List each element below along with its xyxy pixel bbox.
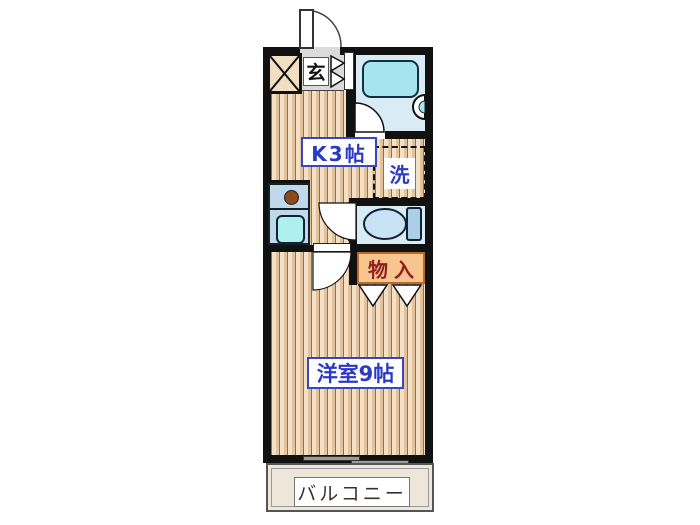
burner — [284, 190, 299, 205]
entrance-door-arc — [313, 11, 341, 47]
western-room-label-box: 洋室9帖 — [307, 357, 404, 389]
toilet-room-floor — [357, 204, 425, 244]
wall-right — [425, 47, 433, 463]
wall-left — [263, 47, 271, 463]
pipe-space — [267, 53, 302, 94]
floor-plan: 玄 洗 物入 K3帖 洋室9帖 バルコニー — [0, 0, 700, 525]
kitchen-sink — [276, 215, 305, 244]
wall-toilet-top — [349, 198, 433, 206]
balcony: バルコニー — [266, 463, 434, 512]
laundry-label: 洗 — [390, 159, 410, 188]
room-door-leaf — [313, 243, 351, 252]
genkan-label-box: 玄 — [303, 57, 329, 86]
bathtub — [362, 60, 419, 98]
balcony-label-box: バルコニー — [294, 477, 410, 507]
kitchen-label: K3帖 — [311, 138, 366, 167]
storage-label: 物入 — [368, 254, 420, 283]
counter-divider — [270, 208, 308, 210]
kitchen-label-box: K3帖 — [301, 137, 377, 167]
entrance-door-leaf — [300, 10, 313, 48]
toilet-door-leaf — [348, 202, 357, 241]
storage-closet: 物入 — [357, 252, 425, 284]
genkan-label: 玄 — [306, 58, 325, 85]
balcony-label: バルコニー — [297, 479, 407, 506]
laundry-space: 洗 — [373, 146, 426, 199]
wall-toilet-bottom — [349, 244, 433, 252]
wall-kitchen-room-left — [263, 245, 313, 252]
western-room-label: 洋室9帖 — [317, 358, 395, 388]
entrance-opening — [300, 47, 340, 55]
bath-entry-gap — [344, 52, 354, 90]
laundry-label-box: 洗 — [384, 158, 415, 189]
kitchen-counter — [268, 183, 310, 245]
